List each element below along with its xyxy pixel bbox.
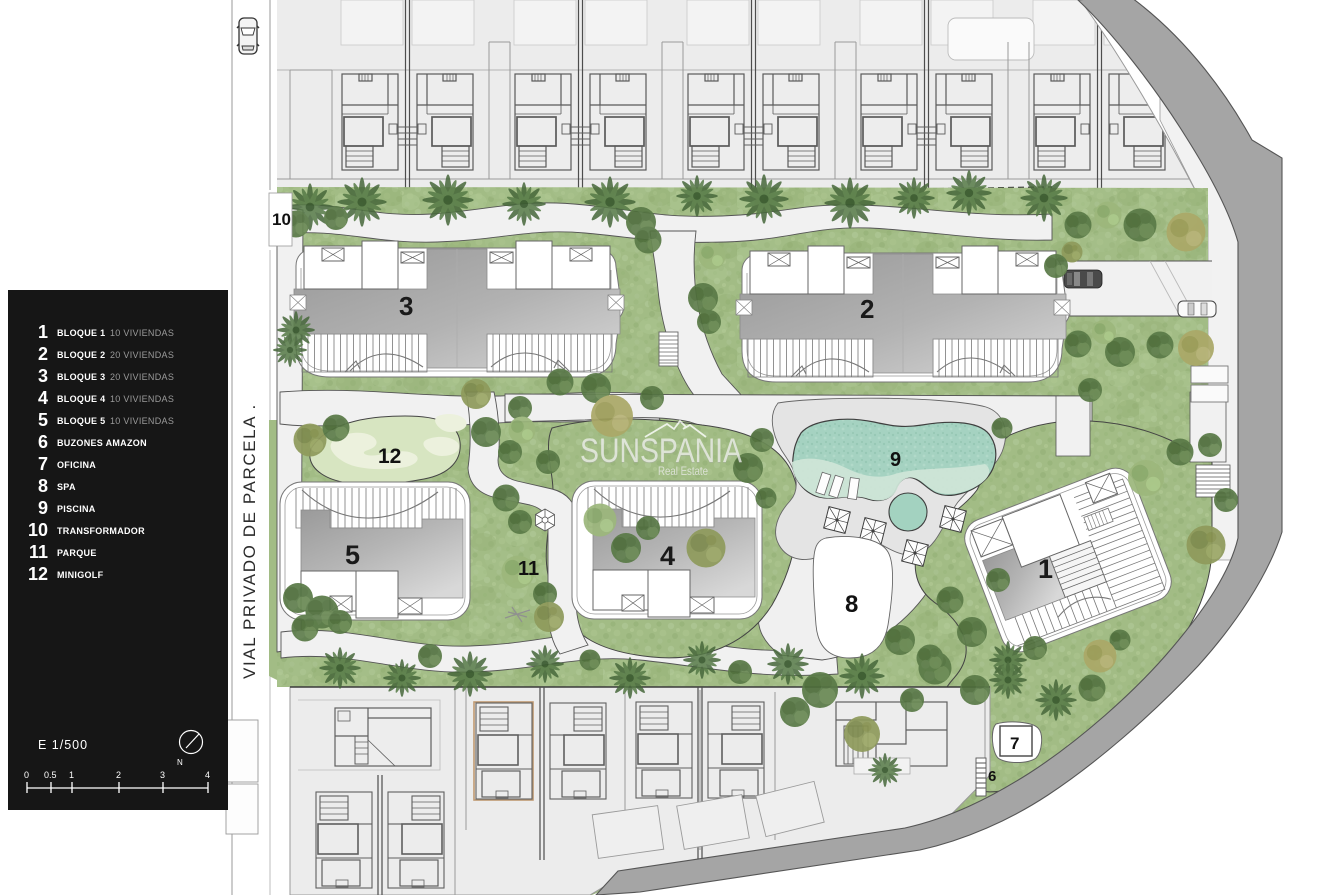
svg-text:2: 2 — [860, 294, 874, 324]
svg-text:7: 7 — [38, 454, 48, 474]
svg-text:9: 9 — [890, 449, 901, 471]
svg-text:OFICINA: OFICINA — [57, 460, 96, 470]
svg-text:3: 3 — [160, 770, 165, 780]
svg-text:TRANSFORMADOR: TRANSFORMADOR — [57, 526, 145, 536]
svg-text:6: 6 — [988, 768, 996, 785]
svg-text:4: 4 — [38, 388, 48, 408]
svg-text:9: 9 — [38, 498, 48, 518]
svg-text:1: 1 — [38, 322, 48, 342]
svg-text:1: 1 — [69, 770, 74, 780]
svg-text:BLOQUE 4: BLOQUE 4 — [57, 394, 105, 404]
svg-text:10 VIVIENDAS: 10 VIVIENDAS — [110, 328, 174, 338]
svg-text:BLOQUE 3: BLOQUE 3 — [57, 372, 105, 382]
svg-text:2: 2 — [38, 344, 48, 364]
svg-text:VIAL PRIVADO DE PARCELA .: VIAL PRIVADO DE PARCELA . — [240, 403, 259, 679]
svg-text:12: 12 — [378, 445, 401, 468]
svg-text:3: 3 — [38, 366, 48, 386]
svg-text:2: 2 — [116, 770, 121, 780]
svg-text:10 VIVIENDAS: 10 VIVIENDAS — [110, 394, 174, 404]
svg-text:PISCINA: PISCINA — [57, 504, 96, 514]
svg-text:0.5: 0.5 — [44, 770, 57, 780]
svg-text:PARQUE: PARQUE — [57, 548, 97, 558]
svg-text:4: 4 — [660, 541, 675, 571]
svg-text:BLOQUE 2: BLOQUE 2 — [57, 350, 105, 360]
svg-text:12: 12 — [28, 564, 48, 584]
svg-text:MINIGOLF: MINIGOLF — [57, 570, 104, 580]
svg-text:5: 5 — [345, 540, 360, 570]
svg-text:BLOQUE 5: BLOQUE 5 — [57, 416, 105, 426]
svg-text:11: 11 — [29, 542, 48, 562]
svg-text:BUZONES AMAZON: BUZONES AMAZON — [57, 438, 147, 448]
svg-text:E 1/500: E 1/500 — [38, 738, 88, 752]
svg-text:SPA: SPA — [57, 482, 76, 492]
svg-text:N: N — [177, 758, 183, 767]
svg-text:20 VIVIENDAS: 20 VIVIENDAS — [110, 372, 174, 382]
svg-text:4: 4 — [205, 770, 210, 780]
svg-text:BLOQUE 1: BLOQUE 1 — [57, 328, 105, 338]
svg-text:8: 8 — [38, 476, 48, 496]
svg-text:10 VIVIENDAS: 10 VIVIENDAS — [110, 416, 174, 426]
svg-text:Real Estate: Real Estate — [658, 464, 708, 478]
svg-text:1: 1 — [1038, 554, 1053, 584]
svg-text:0: 0 — [24, 770, 29, 780]
svg-text:8: 8 — [845, 591, 858, 618]
svg-text:10: 10 — [28, 520, 48, 540]
svg-text:11: 11 — [518, 558, 539, 580]
svg-text:6: 6 — [38, 432, 48, 452]
svg-text:7: 7 — [1010, 734, 1019, 753]
svg-text:3: 3 — [399, 291, 413, 321]
svg-text:5: 5 — [38, 410, 48, 430]
svg-text:20 VIVIENDAS: 20 VIVIENDAS — [110, 350, 174, 360]
svg-text:10: 10 — [272, 210, 291, 229]
